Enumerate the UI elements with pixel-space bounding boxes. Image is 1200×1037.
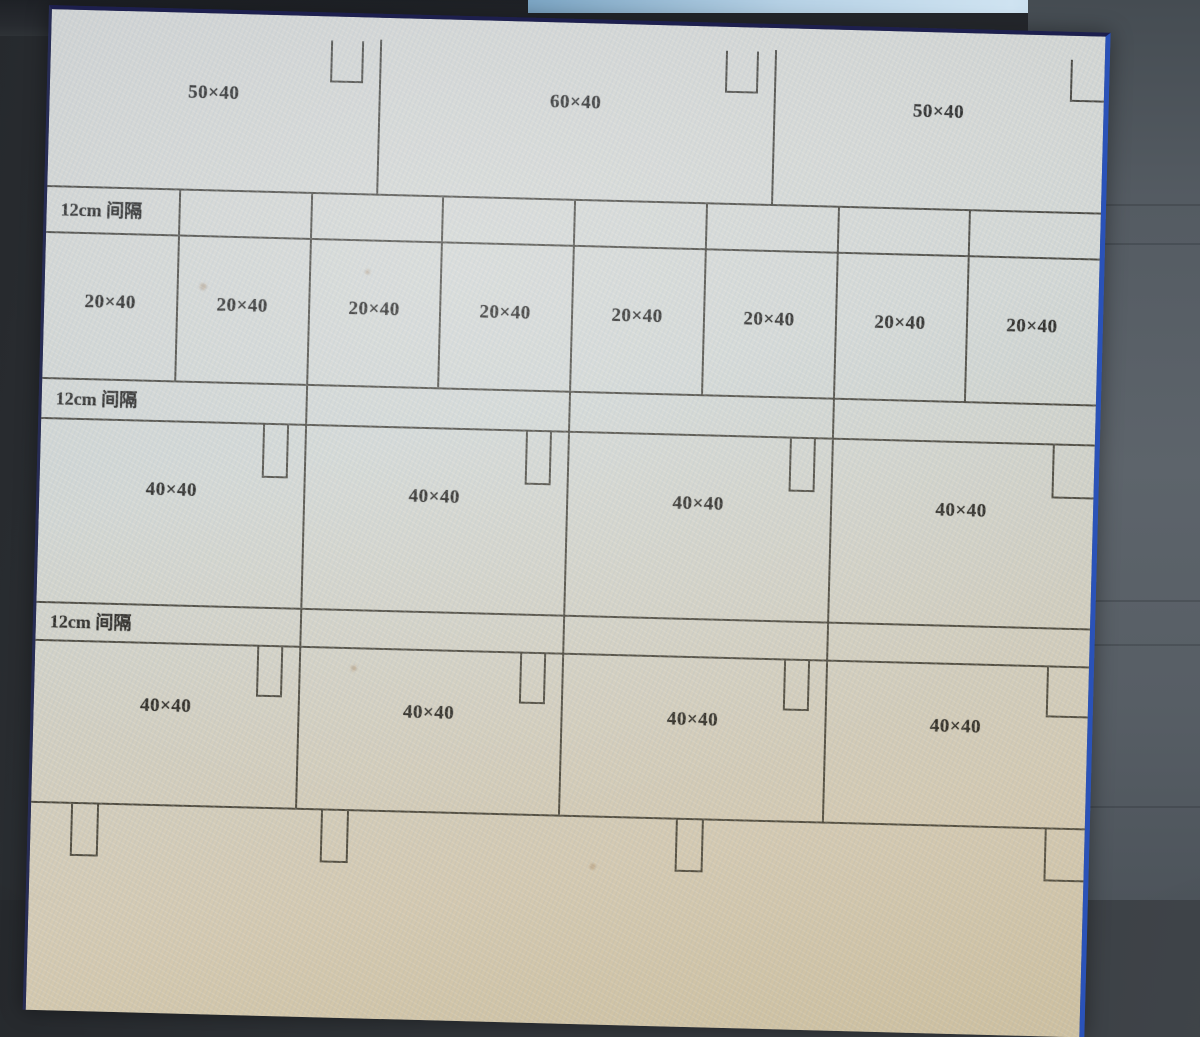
photo-speck bbox=[351, 665, 357, 671]
panel-notch bbox=[256, 645, 283, 698]
panel-divider bbox=[569, 199, 576, 393]
panel-dimension-label: 20×40 bbox=[743, 308, 795, 331]
panel-dimension-label: 40×40 bbox=[672, 492, 724, 515]
layout-drawing: 50×4060×4050×4020×4020×4020×4020×4020×40… bbox=[26, 9, 1106, 1037]
panel-notch bbox=[330, 40, 364, 83]
panel-dimension-label: 40×40 bbox=[408, 486, 460, 509]
panel-divider bbox=[771, 50, 777, 206]
panel-dimension-label: 20×40 bbox=[348, 298, 400, 321]
panel-divider bbox=[437, 195, 444, 389]
spacer-gap-label: 12cm 间隔 bbox=[60, 195, 142, 223]
panel-notch bbox=[783, 658, 810, 711]
panel-divider bbox=[822, 398, 835, 824]
panel-dimension-label: 40×40 bbox=[935, 499, 987, 522]
panel-dimension-label: 50×40 bbox=[188, 82, 240, 105]
panel-dimension-label: 20×40 bbox=[479, 301, 531, 324]
panel-dimension-label: 20×40 bbox=[216, 294, 268, 317]
panel-dimension-label: 40×40 bbox=[140, 695, 192, 718]
panel-notch bbox=[789, 437, 816, 493]
panel-divider bbox=[306, 192, 313, 386]
panel-divider bbox=[174, 188, 181, 382]
bottom-leg bbox=[70, 802, 99, 857]
bottom-leg bbox=[320, 808, 349, 863]
panel-divider bbox=[833, 206, 840, 400]
panel-notch bbox=[519, 652, 546, 705]
document-page: 50×4060×4050×4020×4020×4020×4020×4020×40… bbox=[23, 5, 1111, 1037]
panel-divider bbox=[701, 202, 708, 396]
panel-divider bbox=[376, 40, 382, 196]
panel-dimension-label: 20×40 bbox=[1006, 315, 1058, 338]
spacer-gap-label: 12cm 间隔 bbox=[55, 384, 137, 412]
photo-speck bbox=[365, 269, 370, 274]
panel-dimension-label: 60×40 bbox=[550, 91, 602, 114]
panel-notch-clipped bbox=[1051, 443, 1094, 499]
panel-dimension-label: 40×40 bbox=[929, 715, 981, 738]
panel-notch bbox=[525, 430, 552, 486]
panel-dimension-label: 40×40 bbox=[667, 708, 719, 731]
panel-dimension-label: 20×40 bbox=[874, 312, 926, 335]
panel-divider bbox=[964, 209, 971, 403]
panel-notch bbox=[262, 423, 289, 479]
panel-dimension-label: 20×40 bbox=[84, 291, 136, 314]
panel-divider bbox=[295, 384, 308, 810]
panel-dimension-label: 40×40 bbox=[145, 479, 197, 502]
spacer-gap-label: 12cm 间隔 bbox=[50, 607, 132, 635]
screen-photo: { "photo": { "surround_color": "#2e3236"… bbox=[0, 0, 1200, 900]
panel-notch-clipped bbox=[1046, 665, 1089, 718]
bottom-leg-clipped bbox=[1043, 827, 1084, 882]
panel-divider bbox=[558, 391, 571, 817]
bottom-leg bbox=[675, 818, 704, 873]
panel-dimension-label: 40×40 bbox=[403, 702, 455, 725]
panel-notch bbox=[725, 51, 759, 94]
panel-notch-clipped bbox=[1070, 60, 1105, 103]
panel-dimension-label: 50×40 bbox=[913, 101, 965, 124]
panel-dimension-label: 20×40 bbox=[611, 305, 663, 328]
